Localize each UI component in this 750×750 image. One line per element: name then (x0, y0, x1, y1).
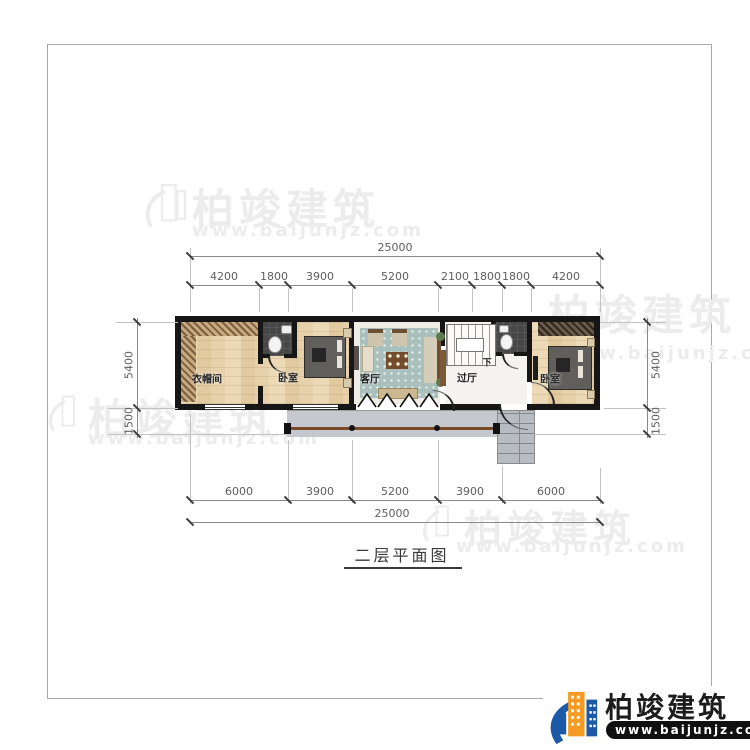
coffee-table (386, 352, 408, 369)
extension-line (531, 288, 532, 312)
railing-post (284, 423, 291, 434)
room-label-bedroom-left: 卧室 (278, 370, 298, 385)
extension-line (352, 288, 353, 312)
dim-label-right: 1500 (650, 407, 663, 435)
dimension-line-top-segments (190, 285, 600, 286)
dim-label: 1800 (473, 270, 501, 283)
dim-label-left: 5400 (123, 351, 136, 379)
extension-line (190, 414, 191, 504)
extension-line (472, 288, 473, 312)
railing-post (434, 425, 440, 431)
window (205, 404, 245, 410)
armchair (368, 329, 383, 346)
railing-post (493, 423, 500, 434)
brand-watermark-icon (46, 388, 84, 438)
wall-cloakroom-divider (258, 386, 263, 404)
room-label-living: 客厅 (360, 371, 380, 386)
dimension-line-left (137, 318, 138, 438)
tv-cabinet (354, 346, 359, 370)
dim-label: 3900 (306, 270, 334, 283)
wall-bathroom-left (292, 322, 297, 358)
room-label-cloakroom: 衣帽间 (192, 371, 222, 386)
wardrobe-hatch (538, 322, 594, 336)
pillow (578, 366, 583, 378)
extension-line (352, 440, 353, 503)
nightstand (587, 338, 595, 347)
floor-plan-sheet: 柏竣建筑 www.baijunjz.com 柏竣建筑 www.baijunjz.… (0, 0, 750, 750)
extension-line (108, 408, 178, 409)
nightstand (343, 328, 352, 338)
dimension-line-bottom-total (190, 522, 600, 523)
dim-label: 4200 (552, 270, 580, 283)
extension-line (288, 288, 289, 312)
extension-line (116, 322, 178, 323)
wall-bottom (245, 404, 293, 410)
dim-label-right: 5400 (650, 351, 663, 379)
dim-label: 4200 (210, 270, 238, 283)
folding-door-icon (356, 392, 440, 409)
logo-url-text: www.baijunjz.com (606, 721, 750, 739)
pillow (337, 356, 342, 368)
watermark-url-text: www.baijunjz.com (456, 536, 688, 557)
room-label-bedroom-right: 卧室 (540, 371, 560, 386)
extension-line (502, 466, 503, 503)
dim-label: 5200 (381, 270, 409, 283)
window (293, 404, 338, 410)
pillow (578, 350, 583, 362)
toilet (500, 334, 513, 350)
tv (533, 356, 538, 380)
dimension-line-bottom-segments (190, 500, 600, 501)
nightstand (587, 390, 595, 399)
dim-label-top-total: 25000 (378, 241, 413, 254)
extension-line (438, 288, 439, 312)
brand-watermark-icon (420, 498, 458, 548)
watermark-left: 柏竣建筑 www.baijunjz.com (46, 388, 84, 442)
extension-line (600, 322, 666, 323)
dim-label: 3900 (306, 485, 334, 498)
armchair (392, 329, 407, 346)
wall-hall-bedroom (527, 322, 532, 382)
wardrobe-hatch (181, 336, 196, 402)
balcony (287, 410, 497, 437)
sink (499, 325, 509, 333)
railing-post (349, 425, 355, 431)
title-underline (344, 567, 462, 569)
brand-logo-icon (543, 686, 601, 748)
stair-down-label: 下 (482, 356, 491, 369)
drawing-title: 二层平面图 (354, 542, 449, 566)
chaise (362, 346, 374, 372)
wardrobe-hatch (181, 322, 258, 336)
toilet (268, 336, 282, 353)
plant (436, 332, 445, 341)
extension-line (438, 440, 439, 503)
logo-brand-text: 柏竣建筑 (605, 686, 729, 726)
dim-label-bottom-total: 25000 (375, 507, 410, 520)
wall-bottom (175, 404, 205, 410)
nightstand (343, 378, 352, 388)
dimension-line-right (647, 318, 648, 438)
dim-label: 1800 (502, 270, 530, 283)
dim-label: 3900 (456, 485, 484, 498)
dim-label: 5200 (381, 485, 409, 498)
sofa (424, 337, 441, 383)
sink (281, 325, 292, 334)
dim-label: 6000 (225, 485, 253, 498)
extension-line (259, 288, 260, 312)
extension-line (288, 440, 289, 503)
brand-watermark-icon (142, 178, 188, 232)
stair-landing (456, 338, 484, 352)
watermark-bottom: 柏竣建筑 www.baijunjz.com (420, 498, 458, 548)
dim-label: 6000 (537, 485, 565, 498)
wall-bottom (338, 404, 356, 410)
company-logo: 柏竣建筑 www.baijunjz.com (543, 686, 749, 748)
watermark-top-left: 柏竣建筑 www.baijunjz.com (142, 178, 188, 236)
bed-throw (312, 348, 326, 362)
balcony-railing (287, 427, 497, 430)
watermark-url-text: www.baijunjz.com (192, 220, 424, 241)
extension-line (502, 288, 503, 312)
room-label-hall: 过厅 (457, 370, 477, 385)
dim-label: 2100 (441, 270, 469, 283)
dim-label-left: 1500 (123, 407, 136, 435)
dim-label: 1800 (260, 270, 288, 283)
pillow (337, 340, 342, 352)
dimension-line-top-total (190, 256, 600, 257)
